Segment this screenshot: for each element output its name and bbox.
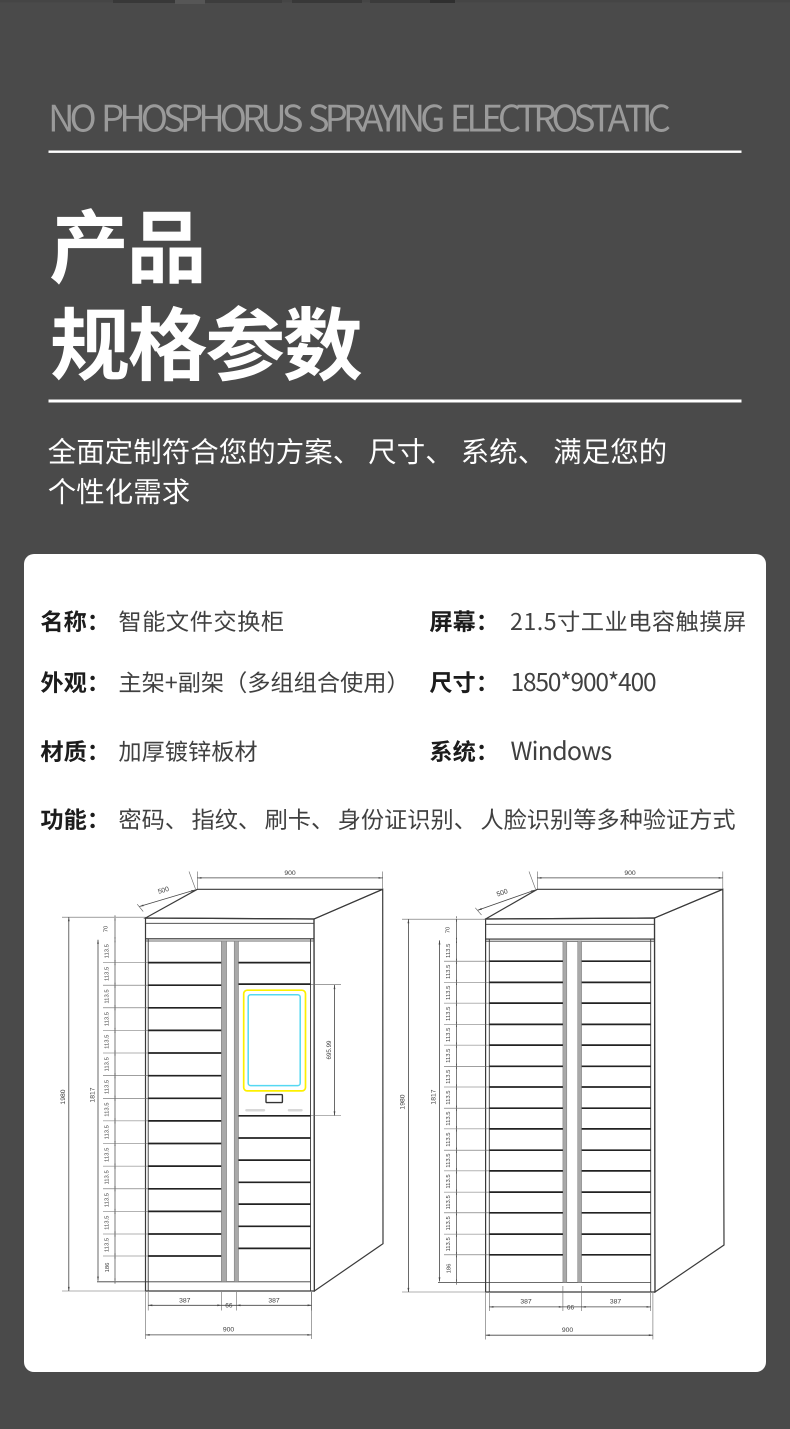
svg-text:1980: 1980 — [399, 1094, 406, 1109]
svg-text:186: 186 — [105, 1262, 111, 1273]
svg-text:387: 387 — [179, 1297, 191, 1304]
svg-text:113.5: 113.5 — [446, 1111, 452, 1126]
svg-text:900: 900 — [562, 1327, 574, 1334]
svg-text:113.5: 113.5 — [446, 985, 452, 1000]
svg-text:900: 900 — [624, 870, 636, 877]
svg-text:113.5: 113.5 — [446, 943, 452, 958]
svg-text:186: 186 — [446, 1263, 452, 1274]
svg-text:900: 900 — [284, 870, 296, 877]
svg-text:1980: 1980 — [60, 1089, 67, 1104]
svg-text:113.5: 113.5 — [104, 1056, 110, 1071]
svg-text:113.5: 113.5 — [446, 1027, 452, 1042]
svg-text:113.5: 113.5 — [104, 1011, 110, 1026]
svg-text:113.5: 113.5 — [446, 1237, 452, 1252]
svg-text:387: 387 — [610, 1299, 622, 1306]
svg-text:113.5: 113.5 — [446, 1006, 452, 1021]
svg-text:70: 70 — [104, 925, 110, 932]
svg-text:113.5: 113.5 — [446, 1195, 452, 1210]
svg-text:113.5: 113.5 — [104, 943, 110, 958]
svg-text:113.5: 113.5 — [446, 1153, 452, 1168]
svg-text:113.5: 113.5 — [104, 1102, 110, 1117]
svg-text:113.5: 113.5 — [104, 1215, 110, 1230]
svg-text:387: 387 — [520, 1299, 532, 1306]
svg-text:695.99: 695.99 — [326, 1040, 333, 1059]
svg-text:113.5: 113.5 — [446, 1216, 452, 1231]
svg-text:66: 66 — [567, 1304, 575, 1311]
svg-text:113.5: 113.5 — [446, 1174, 452, 1189]
svg-text:1817: 1817 — [90, 1087, 97, 1102]
svg-text:113.5: 113.5 — [446, 1069, 452, 1084]
svg-text:113.5: 113.5 — [446, 1048, 452, 1063]
svg-text:113.5: 113.5 — [104, 1124, 110, 1139]
svg-text:113.5: 113.5 — [104, 1034, 110, 1049]
svg-text:70: 70 — [446, 926, 452, 933]
svg-text:113.5: 113.5 — [104, 1147, 110, 1162]
svg-text:66: 66 — [225, 1303, 233, 1310]
svg-text:113.5: 113.5 — [104, 1192, 110, 1207]
svg-text:1817: 1817 — [431, 1089, 438, 1104]
svg-text:113.5: 113.5 — [104, 1079, 110, 1094]
svg-text:113.5: 113.5 — [446, 1132, 452, 1147]
svg-text:113.5: 113.5 — [104, 966, 110, 981]
svg-text:113.5: 113.5 — [104, 1170, 110, 1185]
svg-text:900: 900 — [223, 1327, 235, 1334]
svg-text:113.5: 113.5 — [446, 964, 452, 979]
svg-text:387: 387 — [268, 1297, 280, 1304]
svg-text:113.5: 113.5 — [104, 989, 110, 1004]
svg-text:113.5: 113.5 — [104, 1237, 110, 1252]
svg-text:113.5: 113.5 — [446, 1090, 452, 1105]
